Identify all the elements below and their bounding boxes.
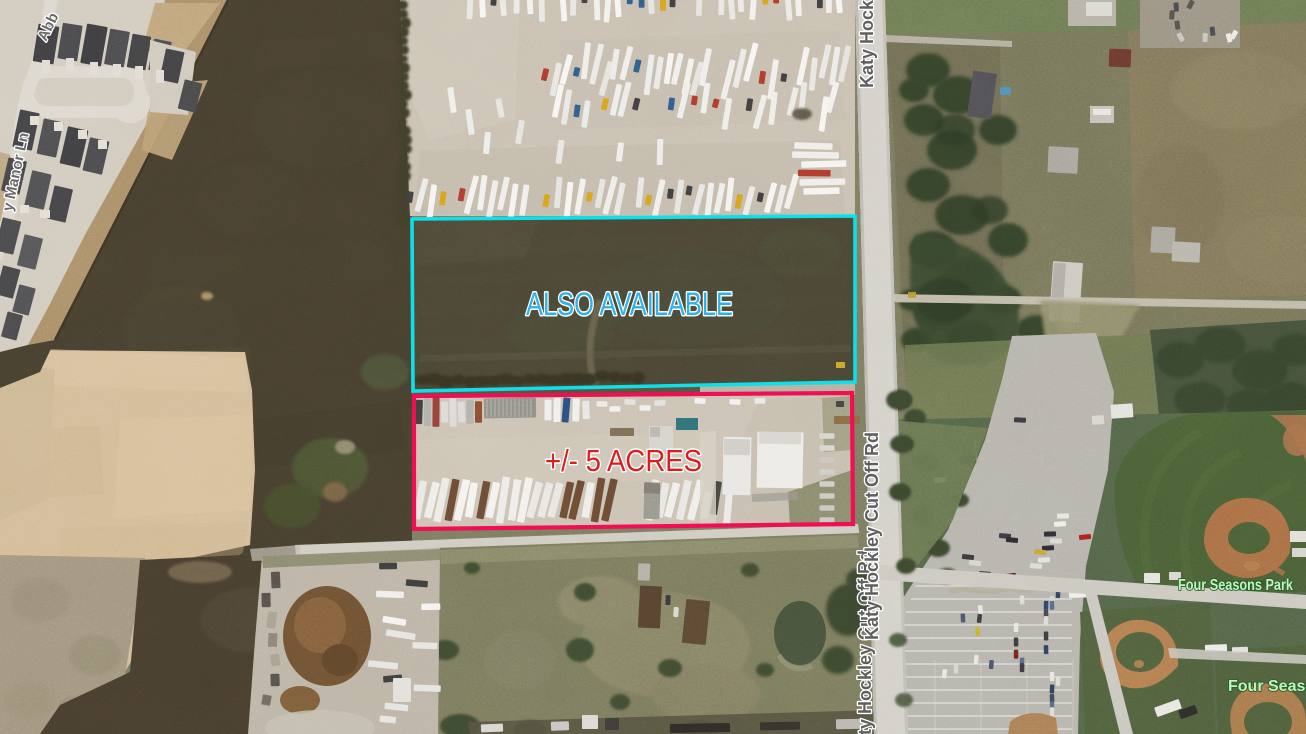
svg-text:Four Seasons Park: Four Seasons Park (1178, 577, 1293, 594)
svg-text:ALSO AVAILABLE: ALSO AVAILABLE (526, 286, 733, 322)
svg-text:Four Seasons: Four Seasons (1228, 678, 1306, 695)
svg-text:Katy Hockley Cut Off Rd: Katy Hockley Cut Off Rd (862, 432, 882, 640)
svg-text:+/- 5 ACRES: +/- 5 ACRES (545, 443, 702, 478)
svg-text:Katy Hockley Cut Off Rd: Katy Hockley Cut Off Rd (857, 0, 877, 88)
